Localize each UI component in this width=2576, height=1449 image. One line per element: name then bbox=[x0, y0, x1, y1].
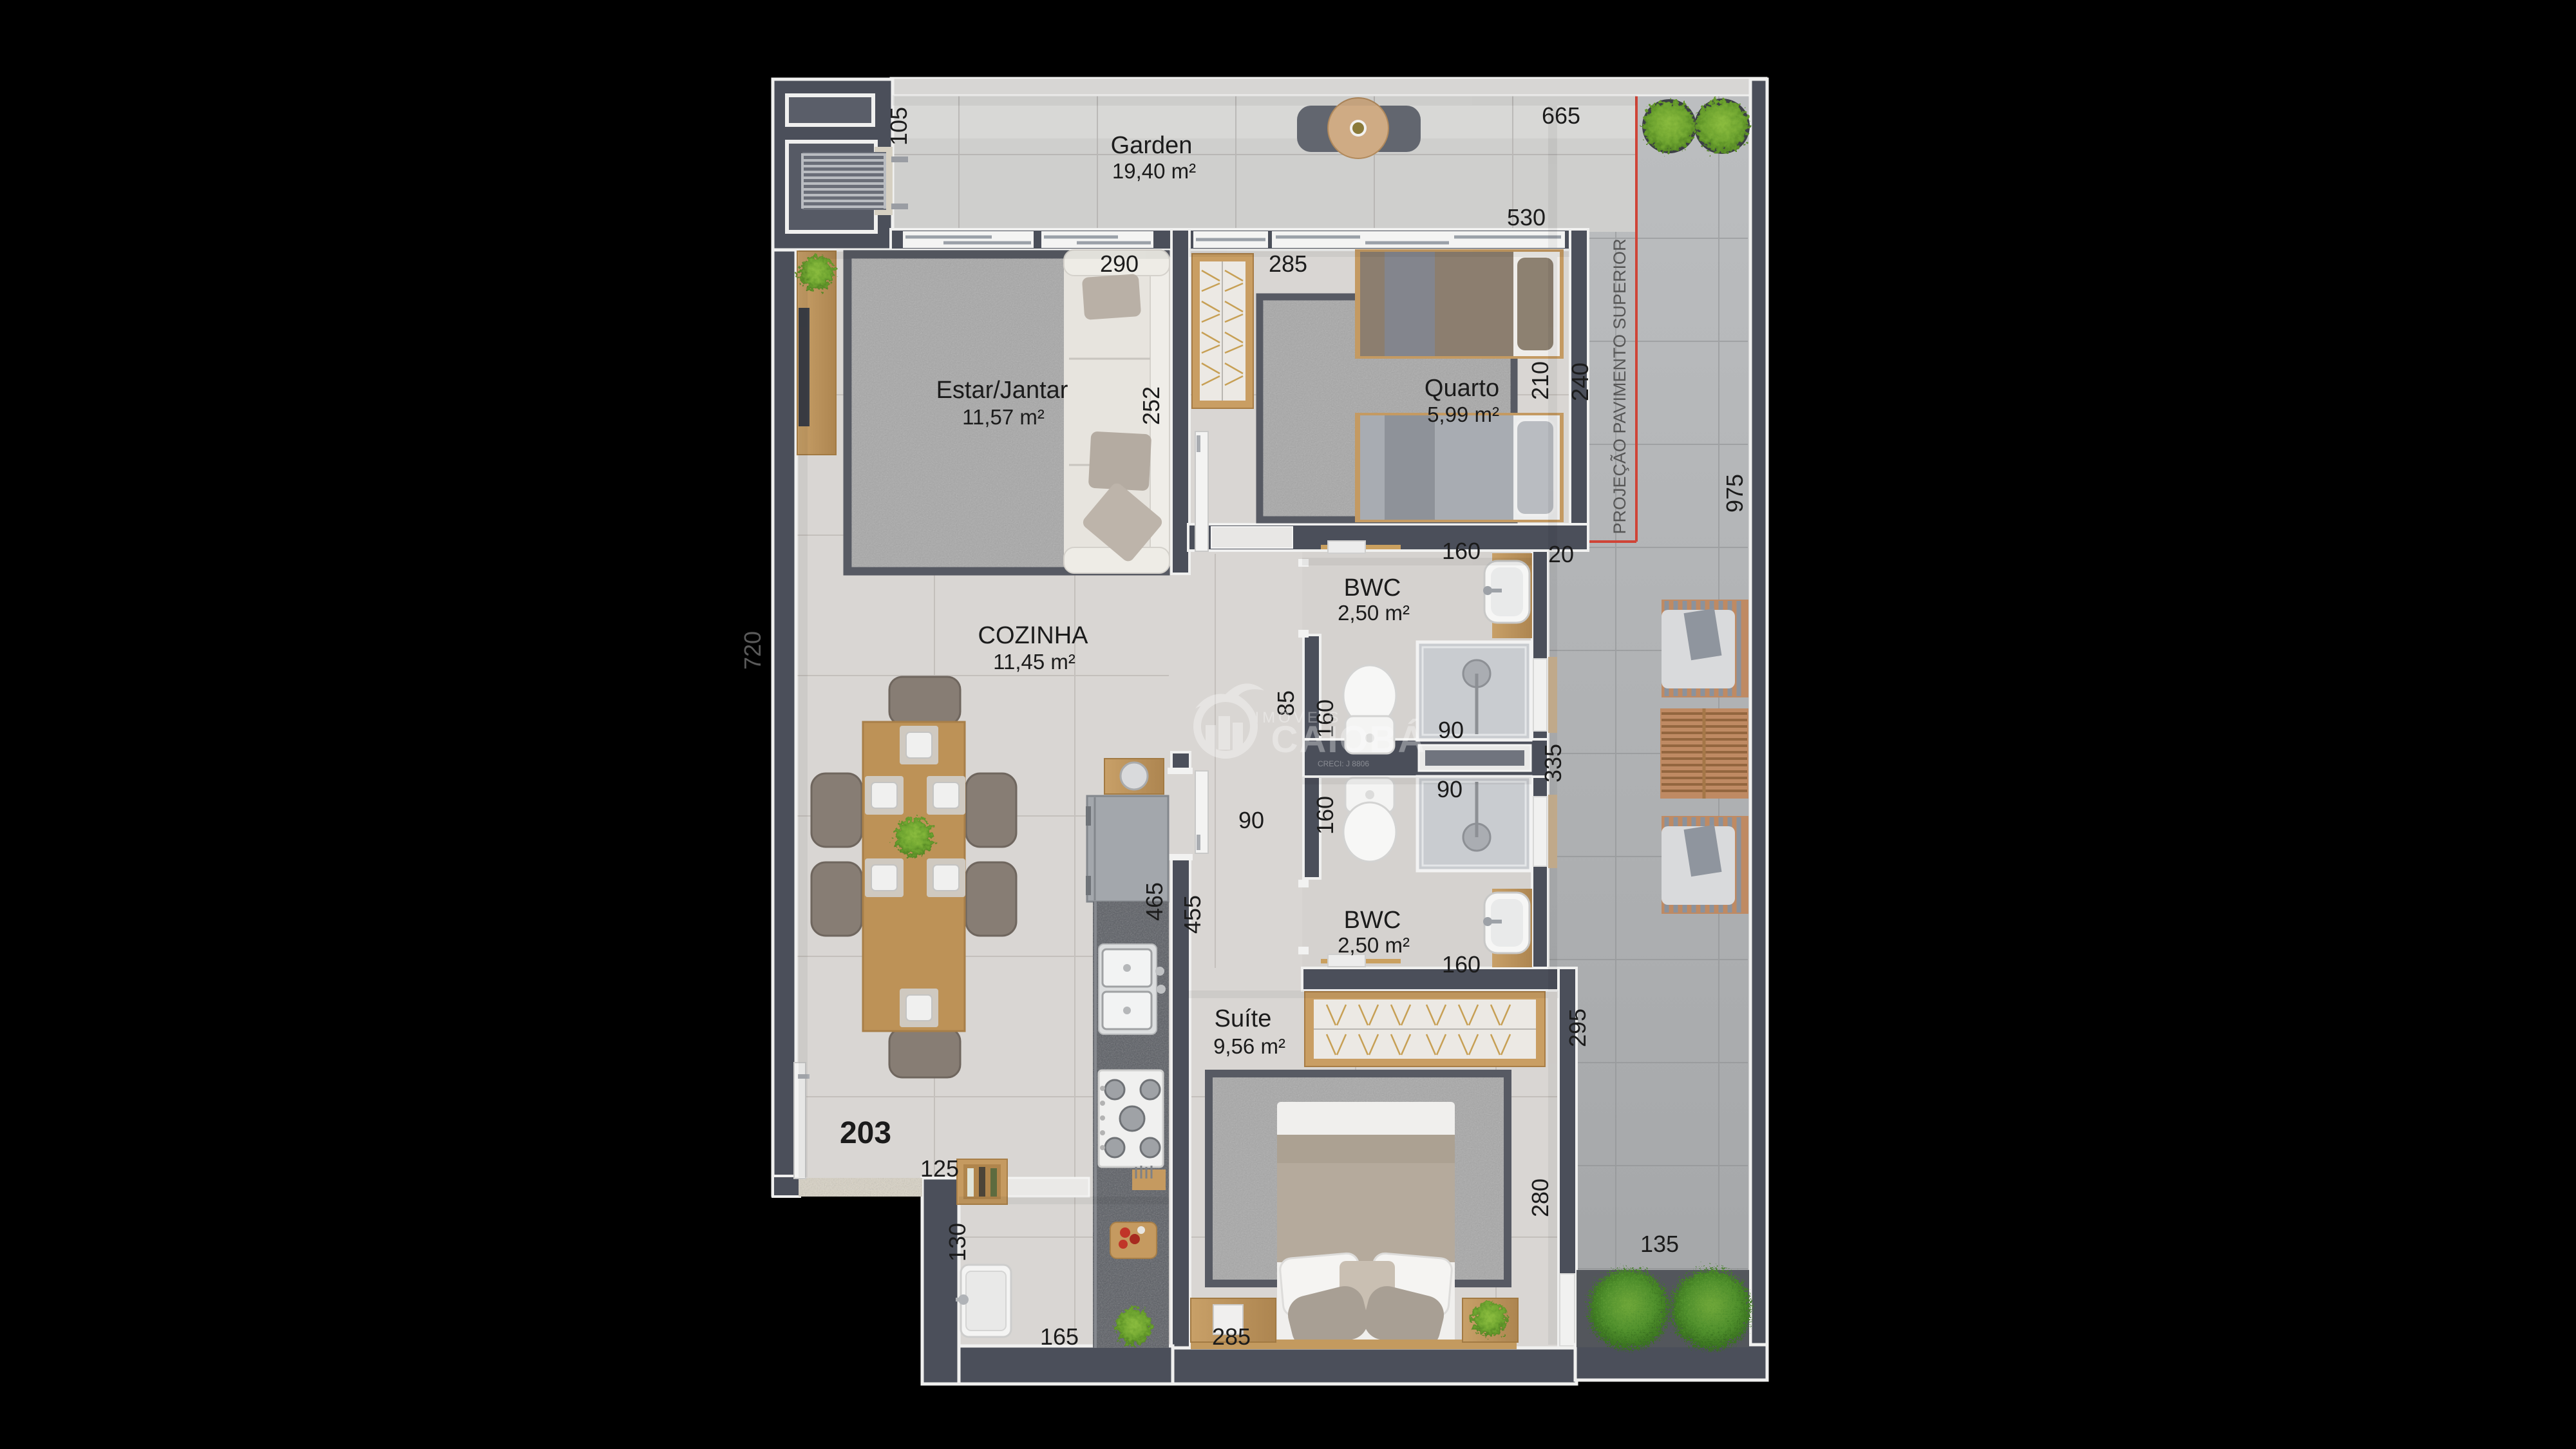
svg-text:COZINHA: COZINHA bbox=[978, 622, 1089, 649]
svg-text:285: 285 bbox=[1269, 251, 1307, 277]
svg-text:455: 455 bbox=[1179, 895, 1206, 934]
svg-text:295: 295 bbox=[1564, 1009, 1591, 1047]
svg-text:135: 135 bbox=[1640, 1231, 1679, 1257]
svg-text:160: 160 bbox=[1442, 951, 1481, 978]
svg-text:PROJEÇÃO PAVIMENTO SUPERIOR: PROJEÇÃO PAVIMENTO SUPERIOR bbox=[1609, 238, 1629, 534]
svg-text:252: 252 bbox=[1138, 386, 1164, 425]
svg-text:285: 285 bbox=[1212, 1323, 1251, 1350]
svg-text:Garden: Garden bbox=[1111, 132, 1193, 159]
svg-text:160: 160 bbox=[1312, 796, 1338, 835]
svg-text:105: 105 bbox=[885, 107, 912, 146]
svg-text:5,99 m²: 5,99 m² bbox=[1427, 402, 1499, 426]
svg-text:530: 530 bbox=[1507, 204, 1546, 231]
svg-text:160: 160 bbox=[1442, 538, 1481, 564]
svg-text:203: 203 bbox=[840, 1116, 891, 1150]
svg-text:975: 975 bbox=[1721, 474, 1748, 513]
svg-text:240: 240 bbox=[1567, 363, 1593, 401]
svg-text:665: 665 bbox=[1542, 102, 1580, 129]
svg-text:210: 210 bbox=[1527, 361, 1553, 400]
svg-text:9,56 m²: 9,56 m² bbox=[1213, 1034, 1285, 1058]
svg-text:280: 280 bbox=[1527, 1179, 1553, 1217]
svg-text:720: 720 bbox=[739, 631, 766, 670]
svg-text:90: 90 bbox=[1238, 807, 1264, 833]
svg-text:Estar/Jantar: Estar/Jantar bbox=[936, 377, 1068, 404]
svg-text:90: 90 bbox=[1438, 717, 1464, 743]
svg-text:290: 290 bbox=[1100, 251, 1139, 277]
svg-text:CAIOBÁ: CAIOBÁ bbox=[1271, 719, 1426, 761]
svg-text:2,50 m²: 2,50 m² bbox=[1338, 601, 1410, 625]
svg-text:2,50 m²: 2,50 m² bbox=[1338, 933, 1410, 957]
svg-text:CRECI: J 8806: CRECI: J 8806 bbox=[1318, 759, 1369, 768]
svg-text:20: 20 bbox=[1548, 541, 1574, 567]
svg-text:90: 90 bbox=[1437, 776, 1463, 802]
svg-text:11,57 m²: 11,57 m² bbox=[962, 405, 1045, 429]
svg-text:165: 165 bbox=[1040, 1323, 1079, 1350]
svg-text:BWC: BWC bbox=[1344, 574, 1401, 601]
svg-text:11,45 m²: 11,45 m² bbox=[993, 650, 1075, 674]
svg-text:Quarto: Quarto bbox=[1425, 375, 1499, 402]
svg-text:335: 335 bbox=[1540, 744, 1566, 782]
svg-text:125: 125 bbox=[920, 1155, 959, 1182]
svg-text:19,40 m²: 19,40 m² bbox=[1112, 159, 1196, 183]
svg-text:465: 465 bbox=[1141, 882, 1168, 921]
svg-text:130: 130 bbox=[944, 1223, 971, 1262]
svg-text:Suíte: Suíte bbox=[1215, 1005, 1272, 1032]
svg-text:BWC: BWC bbox=[1344, 907, 1401, 934]
